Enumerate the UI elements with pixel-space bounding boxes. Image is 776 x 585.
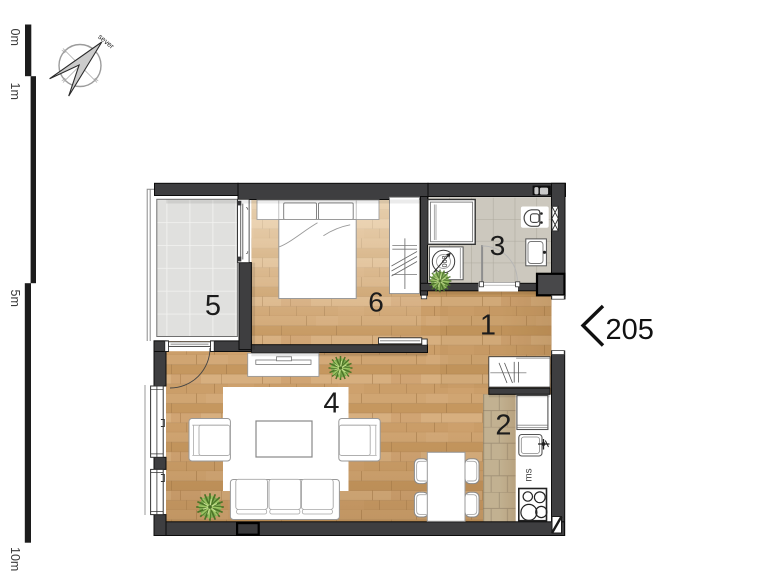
svg-text:1m: 1m — [8, 83, 22, 100]
svg-text:5m: 5m — [8, 290, 22, 307]
svg-text:5: 5 — [205, 290, 221, 322]
svg-text:2: 2 — [495, 410, 511, 442]
svg-text:1: 1 — [480, 310, 496, 342]
svg-text:10m: 10m — [8, 547, 22, 571]
svg-text:0m: 0m — [8, 29, 22, 46]
svg-text:3: 3 — [490, 230, 506, 261]
svg-text:ms: ms — [524, 468, 535, 481]
svg-text:800: 800 — [440, 256, 447, 268]
svg-text:205: 205 — [606, 314, 654, 346]
svg-text:4: 4 — [323, 388, 339, 420]
svg-text:6: 6 — [368, 287, 384, 318]
